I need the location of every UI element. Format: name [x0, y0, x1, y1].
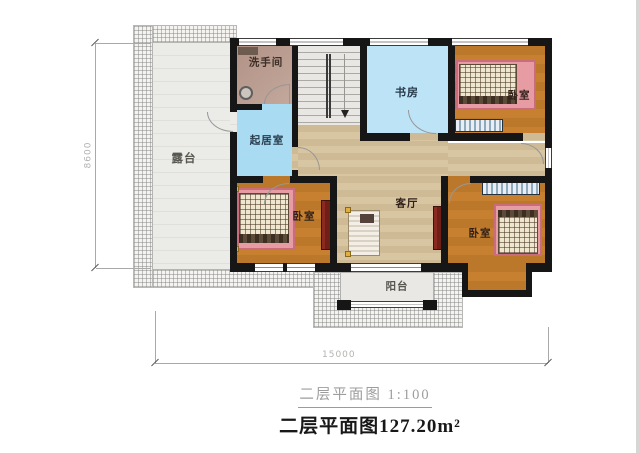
bedroom1-door-gap	[523, 133, 545, 141]
wall	[230, 46, 237, 112]
stair-line	[344, 54, 345, 112]
bedroom-bl-door-gap	[263, 176, 290, 183]
window	[370, 38, 428, 46]
bedroom-bottom-right-bay	[468, 263, 526, 290]
room-label-bedroom-bl: 卧室	[293, 209, 316, 224]
dimension-line-bottom	[155, 363, 548, 364]
edge-strip	[636, 0, 640, 453]
wall	[470, 176, 552, 183]
floor-plan-canvas: 露台 洗手间 起居室 书房 卧室 卧室 卧室 客厅 阳台 8600 15000 …	[0, 0, 640, 453]
terrace-hatch-left	[133, 25, 153, 288]
dresser	[455, 119, 503, 132]
dimension-ext	[96, 43, 151, 44]
room-label-washroom: 洗手间	[249, 55, 284, 70]
wall	[462, 290, 532, 297]
room-label-living: 客厅	[396, 196, 419, 211]
stair-handrail	[326, 54, 331, 118]
room-label-terrace: 露台	[172, 150, 197, 166]
wall	[230, 263, 255, 272]
wall	[441, 176, 448, 272]
dimension-line-left	[95, 43, 96, 268]
window	[239, 38, 276, 46]
wall	[230, 176, 263, 183]
window	[545, 148, 552, 168]
wall	[528, 38, 552, 46]
room-label-lounge: 起居室	[250, 133, 285, 148]
wall	[330, 176, 337, 272]
wall	[230, 38, 239, 46]
wall	[360, 46, 367, 133]
window	[452, 38, 528, 46]
window	[290, 38, 343, 46]
tv-icon	[360, 214, 374, 223]
wall	[526, 263, 552, 272]
dimension-ext	[548, 327, 549, 363]
balcony-railing	[351, 301, 423, 308]
wall	[545, 168, 552, 272]
window	[287, 263, 315, 272]
room-label-balcony: 阳台	[386, 279, 409, 294]
bed-pillow	[239, 234, 289, 243]
dresser	[482, 182, 540, 195]
room-label-study: 书房	[395, 84, 419, 100]
lamp-icon	[345, 207, 351, 213]
wall	[428, 38, 452, 46]
dimension-value-left: 8600	[83, 142, 93, 169]
lamp-icon	[345, 251, 351, 257]
balcony-door	[351, 263, 421, 272]
wall	[343, 38, 370, 46]
window	[255, 263, 283, 272]
plan-area-caption: 二层平面图127.20m²	[252, 411, 488, 438]
plan-scale-caption: 二层平面图 1:100	[298, 383, 432, 408]
wall	[448, 133, 523, 141]
wall	[360, 133, 410, 141]
washroom-door-gap	[262, 104, 292, 110]
sink-icon	[239, 86, 253, 100]
room-label-bedroom-br: 卧室	[469, 226, 492, 241]
wall	[237, 104, 262, 110]
room-label-bedroom-tr: 卧室	[508, 88, 531, 103]
wall	[292, 46, 298, 147]
wall	[526, 272, 532, 297]
wall	[545, 46, 552, 148]
wall	[315, 263, 351, 272]
terrace-hatch-top	[152, 25, 237, 43]
wall	[230, 132, 237, 272]
dimension-ext	[96, 268, 151, 269]
stair-direction-arrow	[341, 110, 349, 118]
bedroom-br-door-gap	[448, 176, 470, 183]
wall	[448, 46, 455, 133]
bed-pillow	[498, 210, 538, 217]
balcony-post	[337, 300, 351, 310]
dimension-value-bottom: 15000	[322, 350, 356, 360]
wall	[421, 263, 468, 272]
wall	[276, 38, 290, 46]
study-door-gap	[410, 133, 438, 141]
dimension-ext	[155, 311, 156, 363]
balcony-post	[423, 300, 437, 310]
